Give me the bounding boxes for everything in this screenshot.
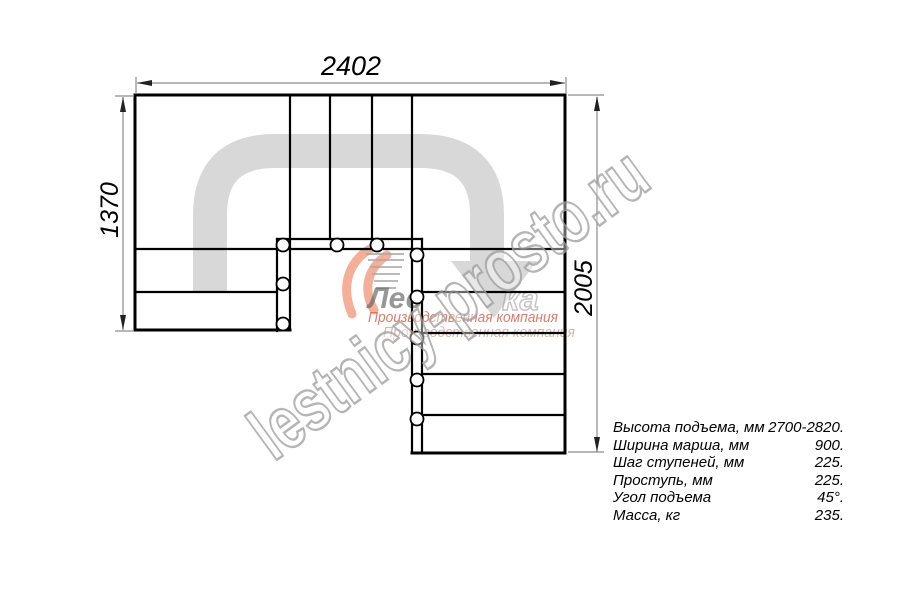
dim-arrow-icon — [594, 96, 600, 111]
screw-hole — [277, 278, 290, 291]
screw-hole — [277, 318, 290, 331]
screw-hole — [371, 239, 384, 252]
spec-label: Проступь, мм — [613, 472, 713, 490]
spec-value: 45°. — [817, 489, 844, 507]
spec-table: Высота подъема, мм 2700-2820. Ширина мар… — [613, 419, 844, 524]
spec-label: Масса, кг — [613, 507, 680, 525]
dim-arrow-icon — [120, 315, 126, 330]
dim-arrow-icon — [594, 437, 600, 452]
spec-value: 2700-2820. — [768, 419, 844, 437]
site-watermark: lestnicy-prosto.ru — [234, 131, 664, 475]
spec-row: Угол подъема 45°. — [613, 489, 844, 507]
spec-label: Высота подъема, мм — [613, 419, 765, 437]
screw-hole — [411, 249, 424, 262]
spec-row: Шаг ступеней, мм 225. — [613, 454, 844, 472]
spec-row: Масса, кг 235. — [613, 507, 844, 525]
spec-value: 225. — [815, 472, 844, 490]
spec-row: Высота подъема, мм 2700-2820. — [613, 419, 844, 437]
dim-arrow-icon — [550, 80, 565, 86]
spec-value: 225. — [815, 454, 844, 472]
screw-hole — [411, 413, 424, 426]
dim-value-height-left: 1370 — [96, 182, 124, 238]
spec-row: Ширина марша, мм 900. — [613, 437, 844, 455]
spec-label: Угол подъема — [613, 489, 711, 507]
dim-value-height-right: 2005 — [570, 260, 598, 317]
dim-arrow-icon — [120, 97, 126, 112]
spec-row: Проступь, мм 225. — [613, 472, 844, 490]
screw-hole — [331, 239, 344, 252]
dim-value-width: 2402 — [320, 51, 381, 81]
site-watermark-text: lestnicy-prosto.ru — [234, 131, 664, 475]
spec-label: Ширина марша, мм — [613, 437, 749, 455]
spec-value: 235. — [815, 507, 844, 525]
staircase-drawing-page: Лес ка Производственная компания Произво… — [0, 0, 900, 600]
dim-arrow-icon — [137, 80, 152, 86]
spec-value: 900. — [815, 437, 844, 455]
screw-hole — [277, 239, 290, 252]
spec-label: Шаг ступеней, мм — [613, 454, 744, 472]
